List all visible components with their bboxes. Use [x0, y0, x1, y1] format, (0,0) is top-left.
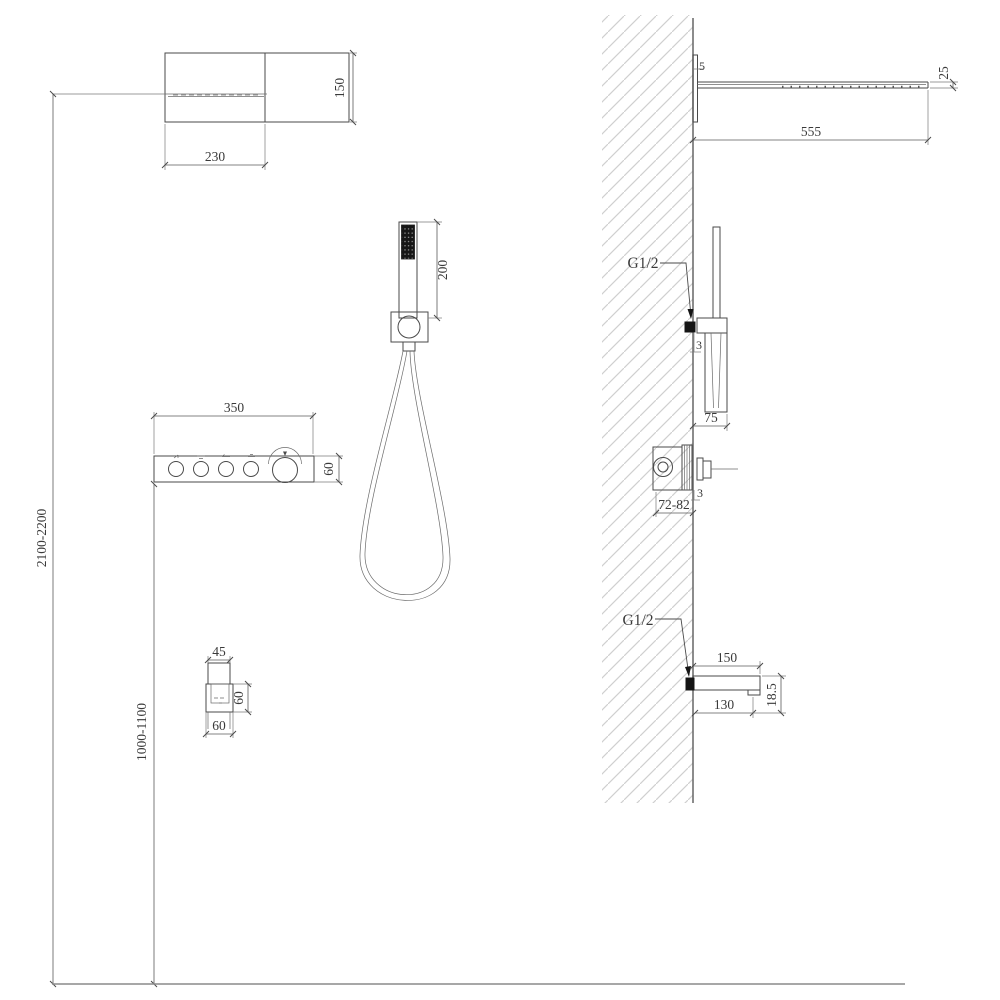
dim-hand-shower-offset: 3: [696, 338, 702, 352]
dim-head-projection: 555: [801, 124, 822, 139]
label-spout-connection: G1/2: [623, 612, 654, 629]
dim-spout-drop: 18.5: [764, 683, 779, 707]
shower-hose: [360, 351, 450, 600]
knob-3: [219, 462, 234, 477]
hose-nut: [403, 342, 415, 351]
spout-body-side: [693, 676, 760, 690]
thermostat-panel-front: 350 60: [154, 400, 343, 483]
hand-shower-spray-face: [402, 225, 415, 259]
shower-head-front: 230 150: [53, 53, 357, 170]
wall-section: [602, 15, 693, 803]
dim-spout-plate-width: 60: [212, 718, 226, 733]
dim-hand-shower-length: 200: [435, 260, 450, 281]
supply-connector-hand-shower: [685, 322, 695, 332]
temperature-knob: [273, 458, 298, 483]
dim-label-mount-height-head: 2100-2200: [34, 509, 49, 568]
dim-head-height: 150: [332, 78, 347, 99]
dim-spout-plate-height: 60: [231, 691, 246, 705]
dim-panel-height: 60: [321, 462, 336, 476]
wall-hatch: [602, 15, 693, 803]
shower-head-side: 5 25 555: [693, 55, 958, 145]
dim-head-thickness: 25: [936, 66, 951, 80]
knob-1: [169, 462, 184, 477]
dim-spout-nozzle-offset: 130: [714, 697, 735, 712]
shower-installation-drawing: 230 150 200: [0, 0, 1000, 1000]
dim-mount-height-head: 2100-2200: [34, 94, 53, 984]
front-view: 230 150 200: [34, 53, 905, 984]
hand-shower-bracket-side: [697, 318, 727, 333]
hand-shower-front: 200: [360, 222, 450, 600]
dim-valve-offset: 3: [697, 486, 703, 500]
spout-nozzle: [748, 690, 760, 695]
dim-head-width: 230: [205, 149, 226, 164]
dim-spout-width: 45: [212, 644, 226, 659]
temperature-pointer: [283, 452, 287, 457]
knob-4: [244, 462, 259, 477]
dim-hand-shower-projection: 75: [704, 410, 718, 425]
panel-knobs: [169, 448, 302, 483]
dim-mount-height-panel: 1000-1100: [134, 484, 154, 984]
dim-spout-projection: 150: [717, 650, 738, 665]
tub-spout-front: 45 60 60: [206, 644, 252, 738]
dim-head-gap: 5: [699, 59, 705, 73]
supply-connector-spout: [686, 678, 694, 690]
side-view: 5 25 555 G1/2: [602, 15, 958, 803]
dim-valve-depth: 72-82: [658, 497, 690, 512]
hand-shower-head-side: [705, 333, 727, 412]
knob-2: [194, 462, 209, 477]
dim-label-mount-height-panel: 1000-1100: [134, 703, 149, 761]
valve-knob: [697, 458, 703, 480]
label-hand-shower-connection: G1/2: [628, 255, 659, 272]
dim-panel-width: 350: [224, 400, 245, 415]
hand-shower-handle-side: [713, 227, 720, 318]
drawing-svg: 230 150 200: [0, 0, 1000, 1000]
